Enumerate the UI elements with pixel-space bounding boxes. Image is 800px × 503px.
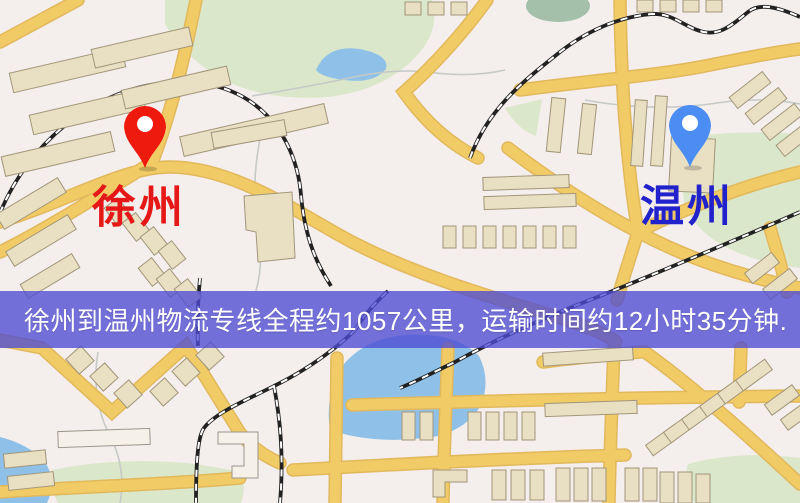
origin-city-label: 徐州 <box>91 183 186 232</box>
destination-city-label: 温州 <box>640 182 734 231</box>
route-info-text: 徐州到温州物流专线全程约1057公里，运输时间约12小时35分钟. <box>24 301 787 338</box>
destination-pin-shadow <box>684 166 702 171</box>
route-info-banner: 徐州到温州物流专线全程约1057公里，运输时间约12小时35分钟. <box>0 291 800 348</box>
map-graphics: 徐州 温州 <box>0 0 800 503</box>
origin-pin-shadow <box>139 167 157 172</box>
map-canvas[interactable]: 徐州 温州 徐州到温州物流专线全程约1057公里，运输时间约12小时35分钟. <box>0 0 800 503</box>
